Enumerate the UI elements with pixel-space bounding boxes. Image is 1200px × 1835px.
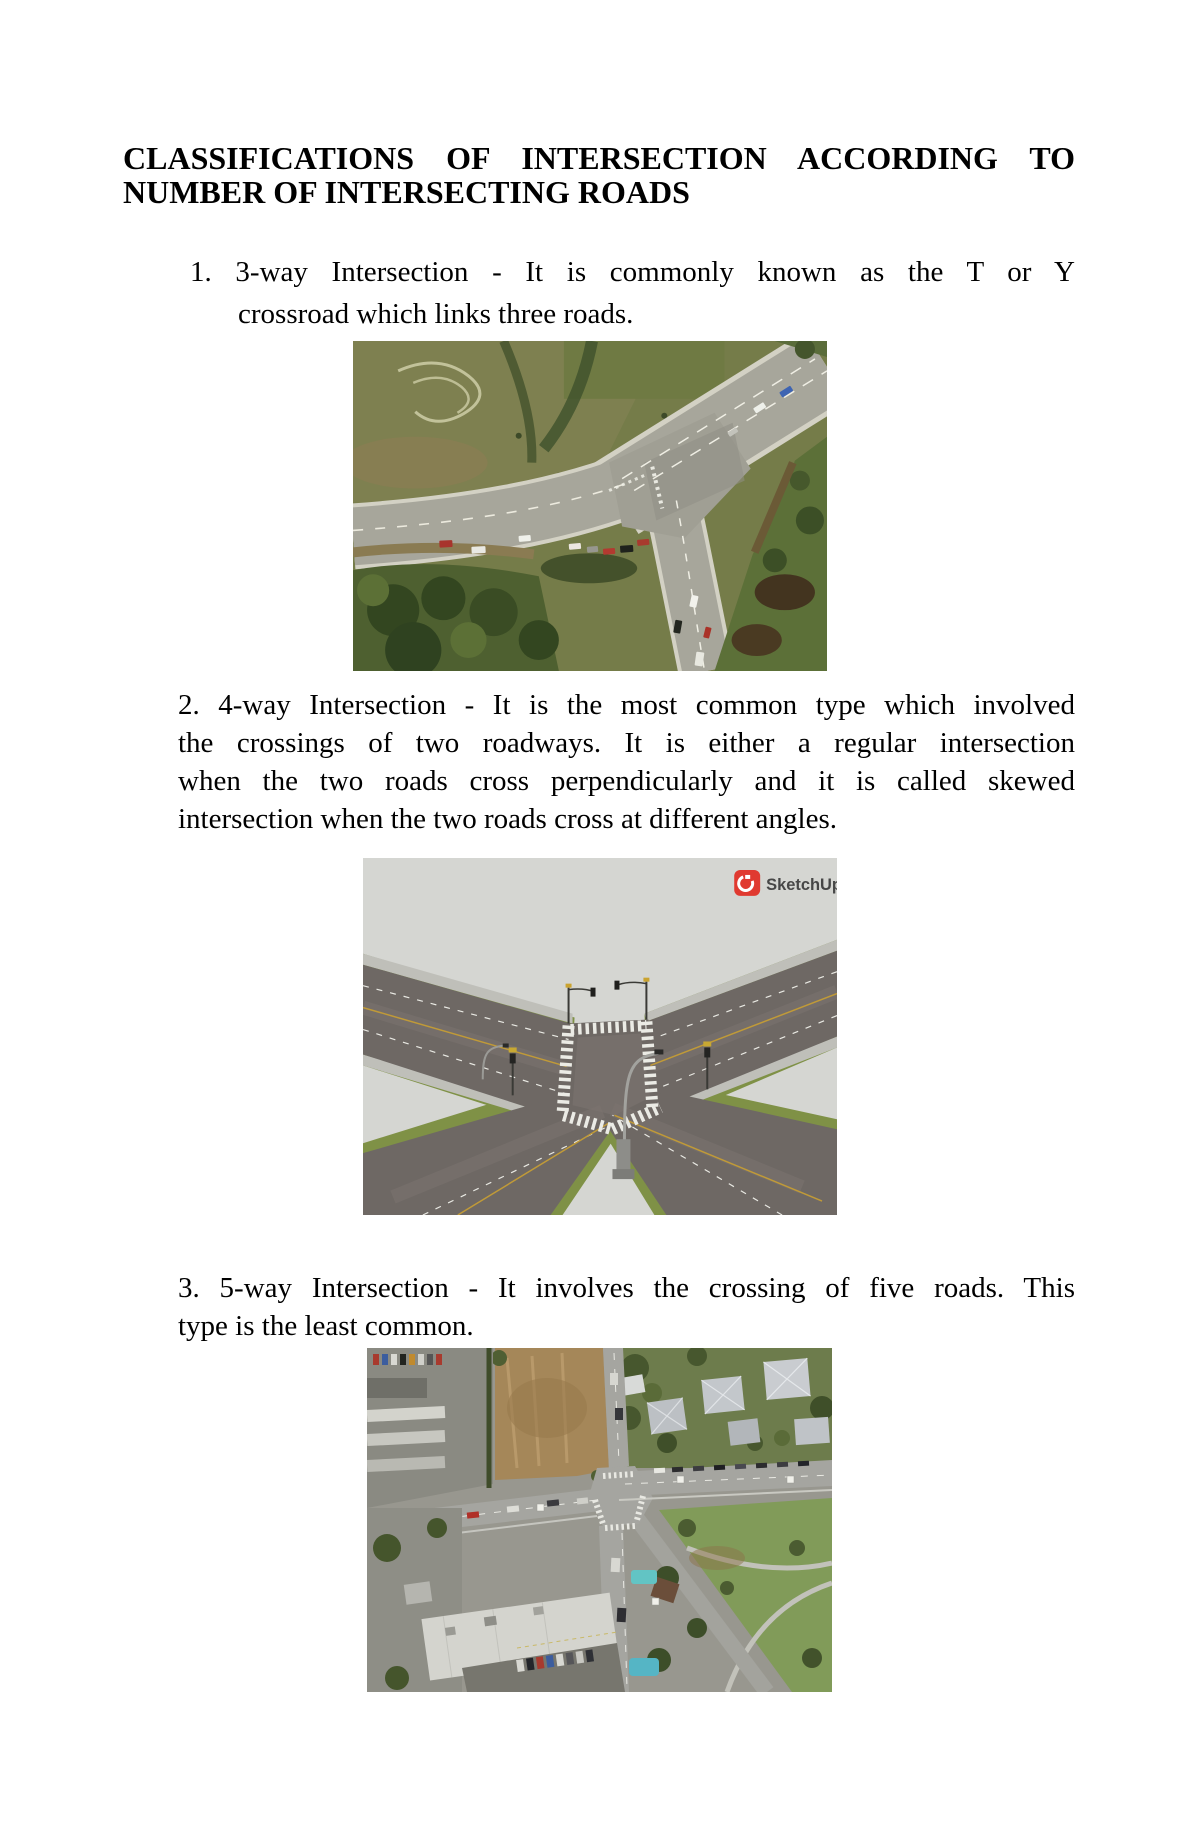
page-title-line-2: NUMBER OF INTERSECTING ROADS (123, 175, 1075, 209)
house-roof (647, 1398, 687, 1435)
list-item-1-line-2: crossroad which links three roads. (190, 293, 1075, 335)
aerial-photo-5-way-intersection (367, 1348, 832, 1692)
list-item-1-line-1: 1. 3-way Intersection - It is commonly k… (190, 251, 1075, 293)
list-item-2-line-4: intersection when the two roads cross at… (178, 800, 1075, 838)
page-title-line-1: CLASSIFICATIONS OF INTERSECTION ACCORDIN… (123, 141, 1075, 175)
aerial-photo-3-way-intersection (353, 341, 827, 671)
aerial-5way-illustration (367, 1348, 832, 1692)
list-item-1: 1. 3-way Intersection - It is commonly k… (190, 251, 1075, 335)
list-item-3-line-2: type is the least common. (178, 1307, 1075, 1345)
list-item-2-line-2: the crossings of two roadways. It is eit… (178, 724, 1075, 762)
sketchup-watermark-text: SketchUp (766, 876, 837, 894)
house-roof (701, 1376, 744, 1414)
list-item-3: 3. 5-way Intersection - It involves the … (178, 1269, 1075, 1345)
house-roof (763, 1358, 810, 1400)
list-item-2-line-1: 2. 4-way Intersection - It is the most c… (178, 686, 1075, 724)
page-title: CLASSIFICATIONS OF INTERSECTION ACCORDIN… (123, 141, 1075, 209)
sketchup-4way-illustration: SketchUp (363, 858, 837, 1215)
list-item-2-line-3: when the two roads cross perpendicularly… (178, 762, 1075, 800)
list-item-2: 2. 4-way Intersection - It is the most c… (178, 686, 1075, 838)
sketchup-render-4-way-intersection: SketchUp (363, 858, 837, 1215)
document-page: CLASSIFICATIONS OF INTERSECTION ACCORDIN… (0, 0, 1200, 1835)
list-item-3-line-1: 3. 5-way Intersection - It involves the … (178, 1269, 1075, 1307)
aerial-3way-illustration (353, 341, 827, 671)
